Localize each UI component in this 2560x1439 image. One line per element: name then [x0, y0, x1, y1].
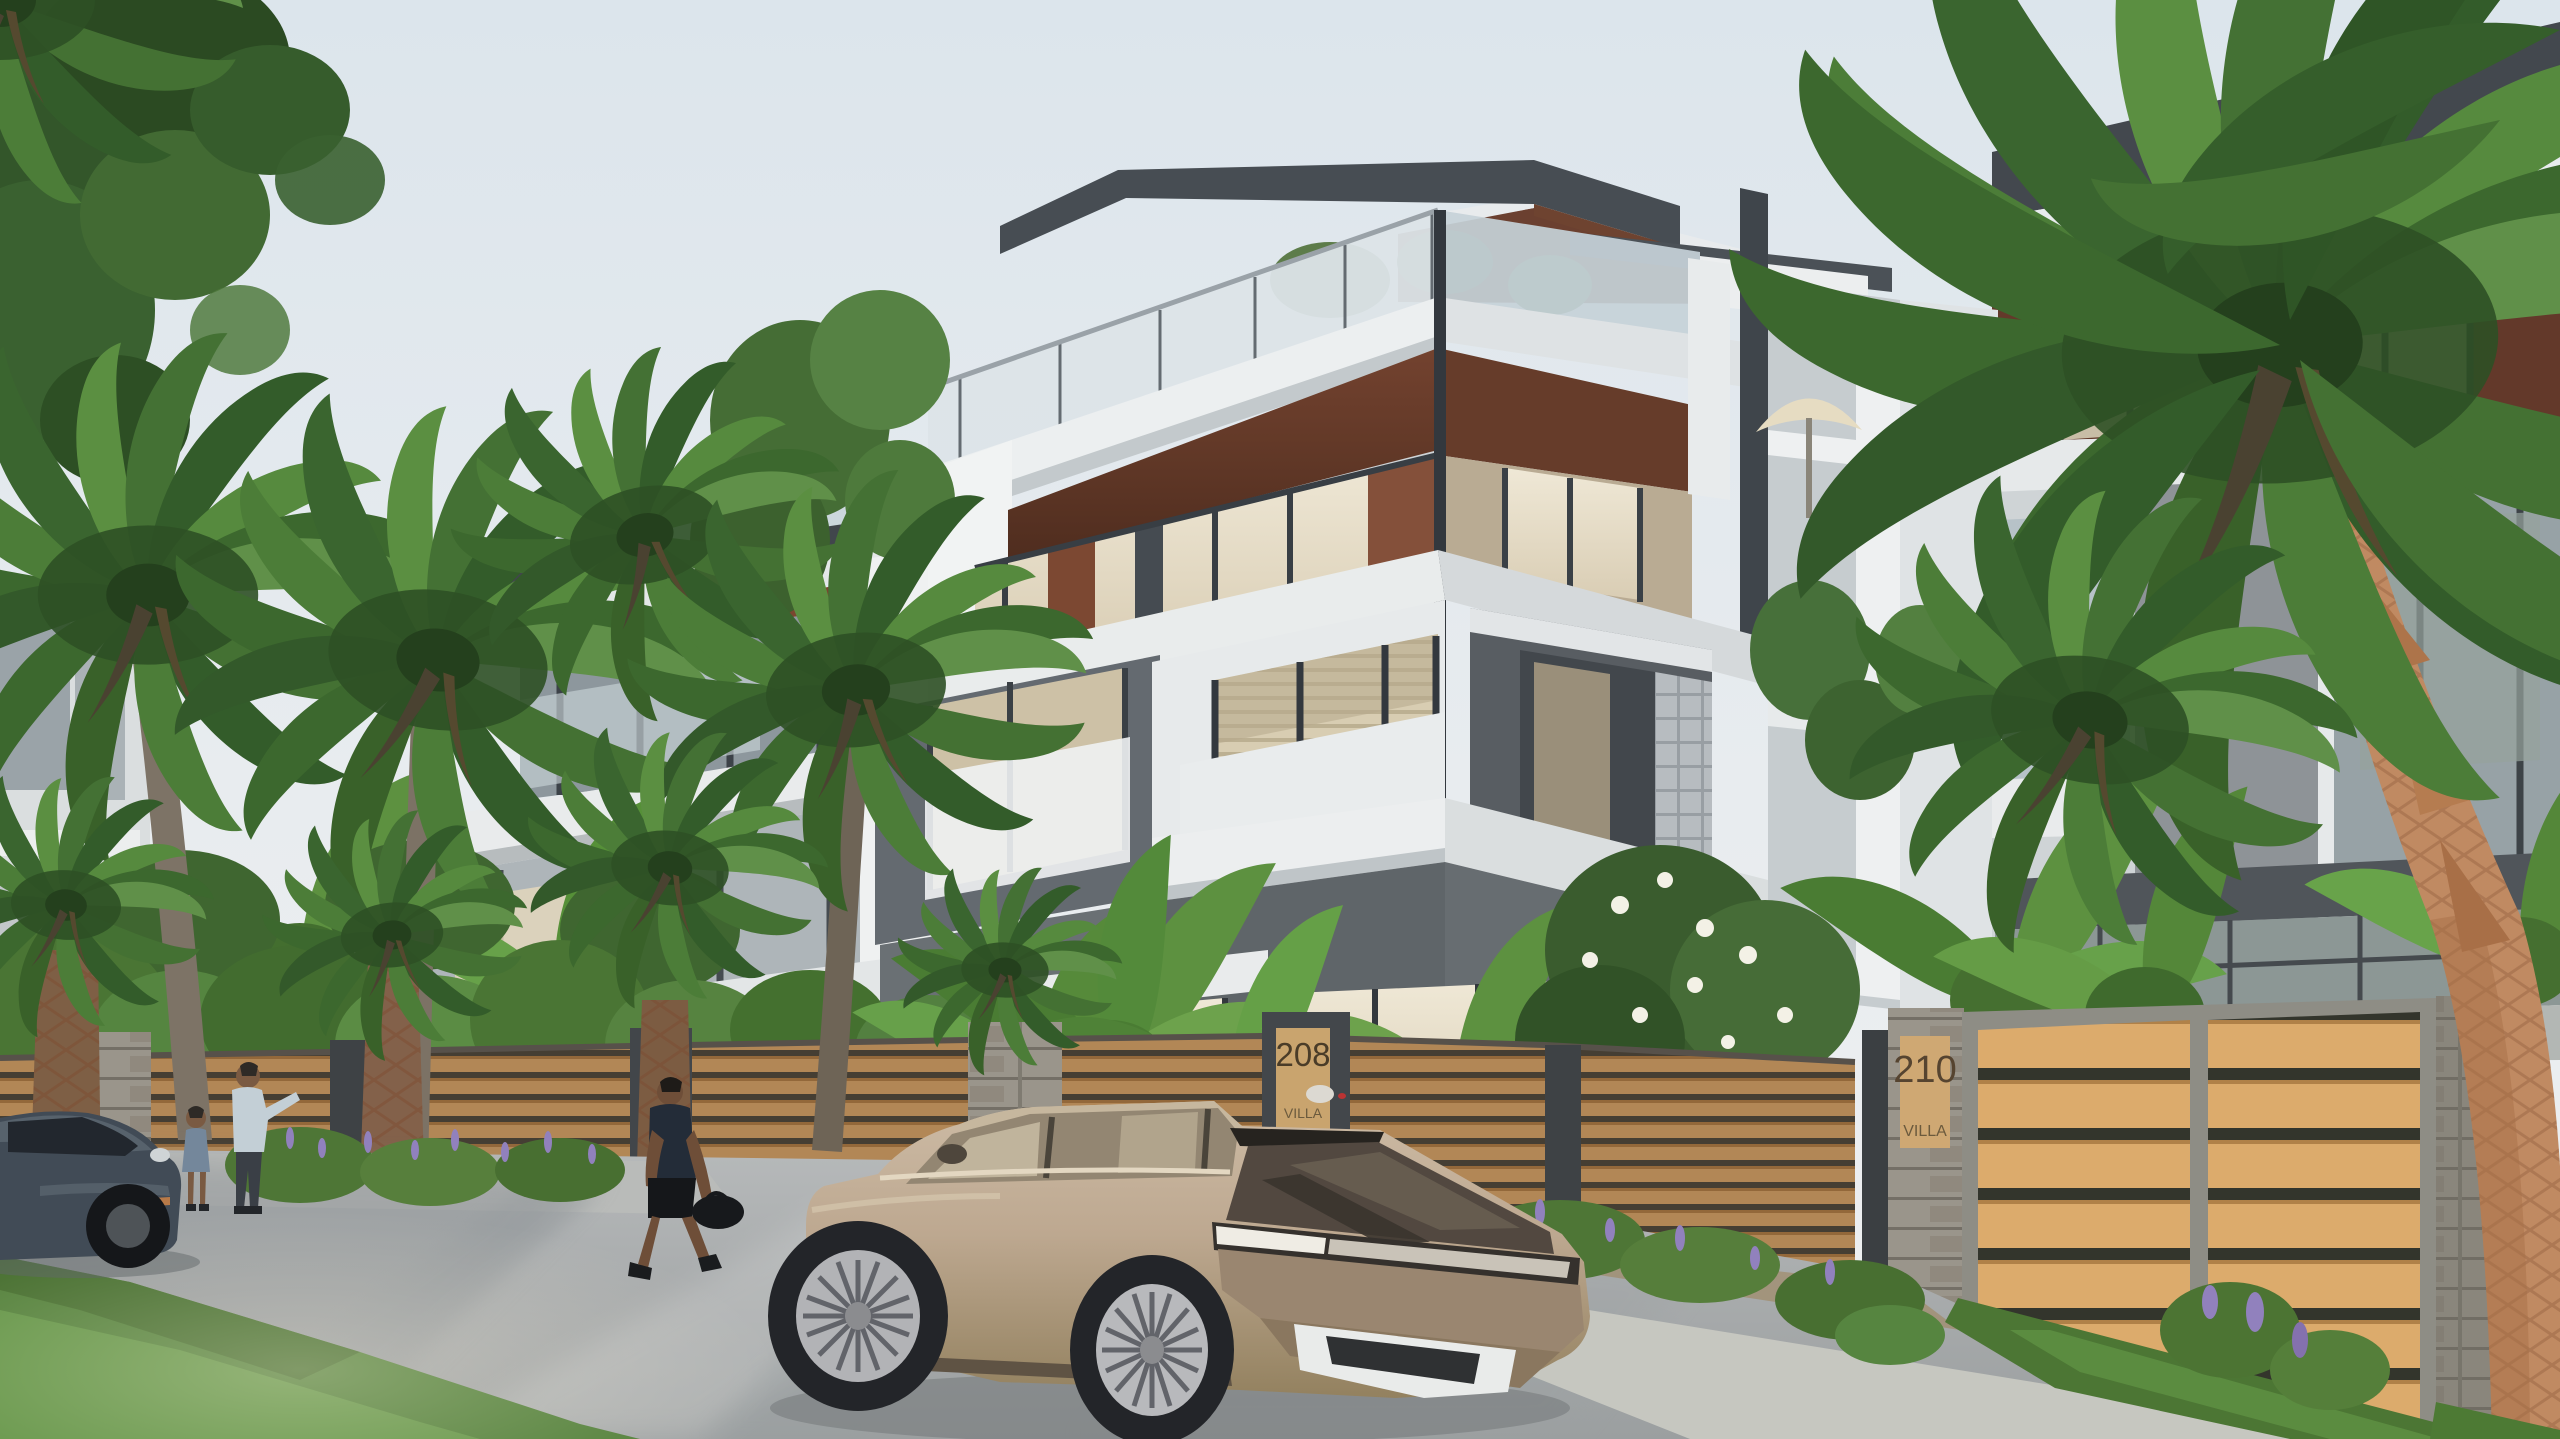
svg-text:VILLA: VILLA [1903, 1123, 1947, 1140]
svg-text:210: 210 [1893, 1049, 1956, 1091]
svg-text:VILLA: VILLA [1284, 1105, 1323, 1121]
svg-text:208: 208 [1275, 1036, 1330, 1073]
